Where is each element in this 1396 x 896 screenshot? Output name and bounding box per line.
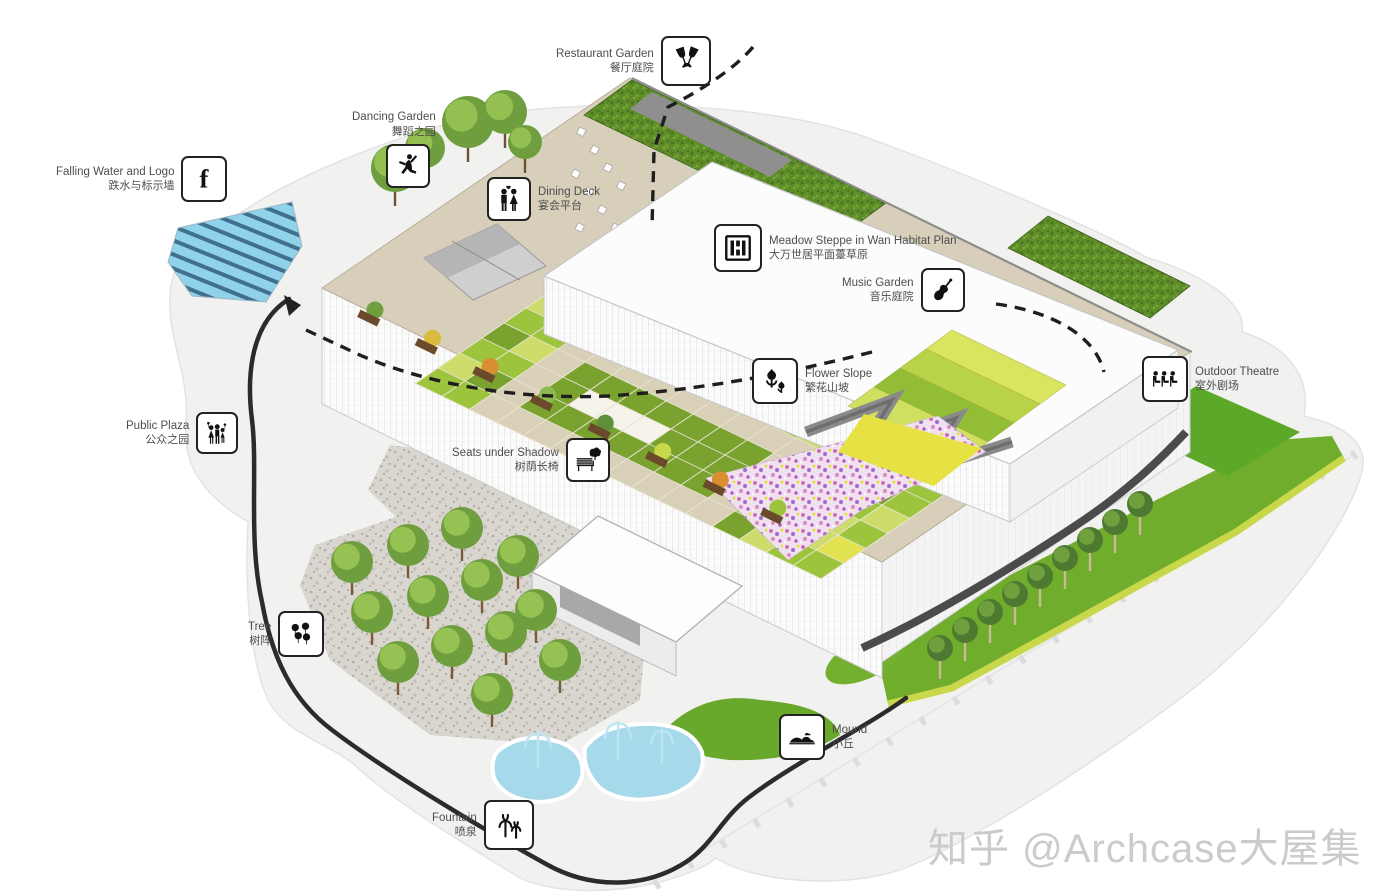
label-en: Mound [832, 723, 867, 738]
tulips-icon [752, 358, 798, 404]
label-zh: 树阵 [248, 634, 271, 648]
label-zh: 大万世居平面薹草原 [769, 248, 957, 262]
label-zh: 树荫长椅 [452, 460, 559, 474]
label-zh: 室外剧场 [1195, 379, 1279, 393]
wine-glasses-icon [661, 36, 711, 86]
label-zh: 宴会平台 [538, 199, 600, 213]
bench-icon [566, 438, 610, 482]
label-zh: 跌水与标示墙 [56, 179, 174, 193]
fountain-icon [484, 800, 534, 850]
label-text: Seats under Shadow 树荫长椅 [452, 446, 559, 475]
label-flower-slope: Flower Slope 繁花山坡 [752, 358, 872, 404]
label-text: Falling Water and Logo 跌水与标示墙 [56, 165, 174, 194]
label-en: Music Garden [842, 276, 914, 291]
label-zh: 舞蹈之园 [352, 125, 436, 139]
seal-icon [714, 224, 762, 272]
label-fountain: Fountain 喷泉 [432, 800, 534, 850]
label-text: Music Garden 音乐庭院 [842, 276, 914, 305]
label-mound: Mound 小丘 [779, 714, 867, 760]
tree-array-icon [278, 611, 324, 657]
label-falling-water: Falling Water and Logo 跌水与标示墙 f [56, 156, 227, 202]
label-en: Tree [248, 620, 271, 635]
label-text: Fountain 喷泉 [432, 811, 477, 840]
label-zh: 繁花山坡 [805, 381, 872, 395]
label-en: Public Plaza [126, 419, 189, 434]
label-en: Flower Slope [805, 367, 872, 382]
letter-f-logo-icon: f [181, 156, 227, 202]
label-en: Falling Water and Logo [56, 165, 174, 180]
label-zh: 喷泉 [432, 825, 477, 839]
label-en: Outdoor Theatre [1195, 365, 1279, 380]
crowd-icon [196, 412, 238, 454]
watermark: 知乎 @Archcase大屋集 [928, 816, 1361, 874]
label-outdoor-theatre: Outdoor Theatre 室外剧场 [1142, 356, 1279, 402]
label-text: Flower Slope 繁花山坡 [805, 367, 872, 396]
label-zh: 音乐庭院 [842, 290, 914, 304]
label-public-plaza: Public Plaza 公众之园 [126, 412, 238, 454]
label-restaurant-garden: Restaurant Garden 餐厅庭院 [556, 36, 711, 86]
label-text: Tree 树阵 [248, 620, 271, 649]
label-en: Dining Deck [538, 185, 600, 200]
label-dancing-garden: Dancing Garden 舞蹈之园 [352, 110, 436, 188]
label-dining-deck: Dining Deck 宴会平台 [487, 177, 600, 221]
label-text: Outdoor Theatre 室外剧场 [1195, 365, 1279, 394]
label-text: Public Plaza 公众之园 [126, 419, 189, 448]
label-text: Dining Deck 宴会平台 [538, 185, 600, 214]
label-meadow-steppe: Meadow Steppe in Wan Habitat Plan 大万世居平面… [714, 224, 957, 272]
label-text: Meadow Steppe in Wan Habitat Plan 大万世居平面… [769, 234, 957, 263]
label-zh: 餐厅庭院 [556, 61, 654, 75]
svg-text:f: f [200, 164, 210, 194]
couple-icon [487, 177, 531, 221]
label-en: Meadow Steppe in Wan Habitat Plan [769, 234, 957, 249]
label-music-garden: Music Garden 音乐庭院 [842, 268, 965, 312]
label-text: Mound 小丘 [832, 723, 867, 752]
label-seats-under-shadow: Seats under Shadow 树荫长椅 [452, 438, 610, 482]
label-text: Dancing Garden 舞蹈之园 [352, 110, 436, 139]
violin-icon [921, 268, 965, 312]
dancer-icon [386, 144, 430, 188]
label-zh: 小丘 [832, 737, 867, 751]
label-zh: 公众之园 [126, 433, 189, 447]
label-tree: Tree 树阵 [248, 611, 324, 657]
site-plan-diagram: Restaurant Garden 餐厅庭院 Dancing Garden 舞蹈… [0, 0, 1396, 896]
label-en: Restaurant Garden [556, 47, 654, 62]
label-en: Seats under Shadow [452, 446, 559, 461]
label-text: Restaurant Garden 餐厅庭院 [556, 47, 654, 76]
mound-icon [779, 714, 825, 760]
label-en: Dancing Garden [352, 110, 436, 125]
label-en: Fountain [432, 811, 477, 826]
audience-seats-icon [1142, 356, 1188, 402]
